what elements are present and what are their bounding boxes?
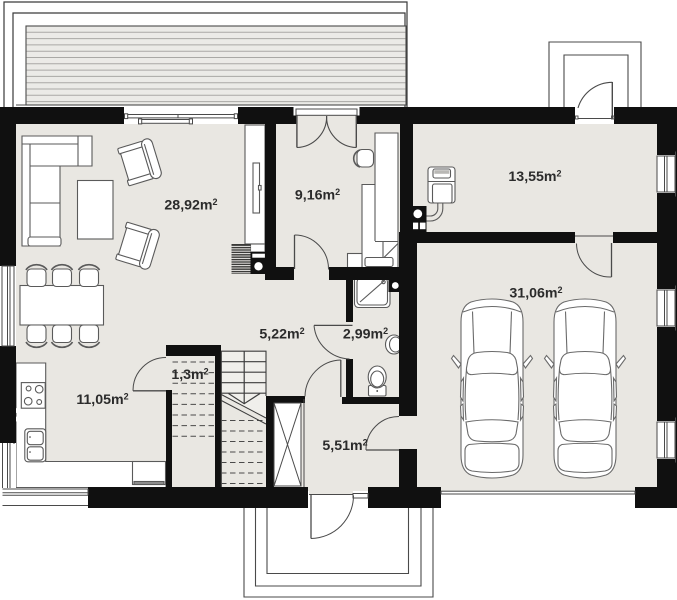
svg-text:5,51m2: 5,51m2 xyxy=(322,437,367,454)
svg-text:9,16m2: 9,16m2 xyxy=(295,187,340,204)
svg-text:13,55m2: 13,55m2 xyxy=(508,168,561,185)
svg-text:31,06m2: 31,06m2 xyxy=(509,285,562,302)
svg-text:11,05m2: 11,05m2 xyxy=(76,391,128,408)
svg-text:2,99m2: 2,99m2 xyxy=(343,326,388,343)
svg-text:28,92m2: 28,92m2 xyxy=(164,197,217,214)
svg-text:1,3m2: 1,3m2 xyxy=(171,366,208,383)
svg-text:5,22m2: 5,22m2 xyxy=(259,326,304,343)
